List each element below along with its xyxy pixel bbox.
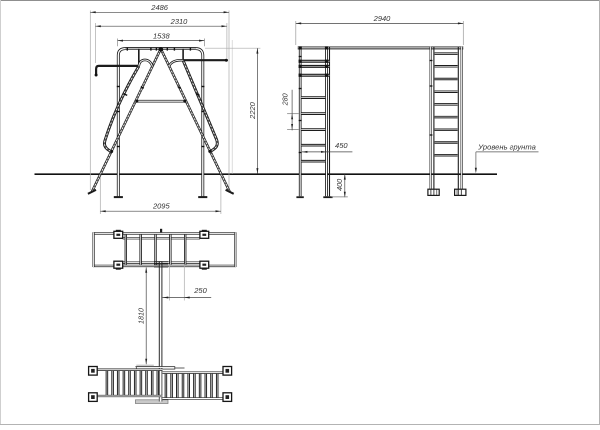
svg-text:2940: 2940 bbox=[373, 14, 392, 23]
svg-text:Уровень грунта: Уровень грунта bbox=[477, 143, 536, 152]
svg-text:450: 450 bbox=[335, 141, 348, 150]
svg-text:2095: 2095 bbox=[152, 201, 171, 210]
svg-text:1810: 1810 bbox=[137, 308, 146, 324]
svg-text:250: 250 bbox=[193, 286, 207, 295]
svg-text:2310: 2310 bbox=[170, 17, 189, 26]
svg-text:1538: 1538 bbox=[153, 31, 171, 40]
svg-text:2220: 2220 bbox=[248, 101, 257, 120]
svg-text:280: 280 bbox=[280, 93, 289, 106]
svg-text:2486: 2486 bbox=[150, 3, 169, 12]
svg-text:400: 400 bbox=[335, 179, 344, 191]
